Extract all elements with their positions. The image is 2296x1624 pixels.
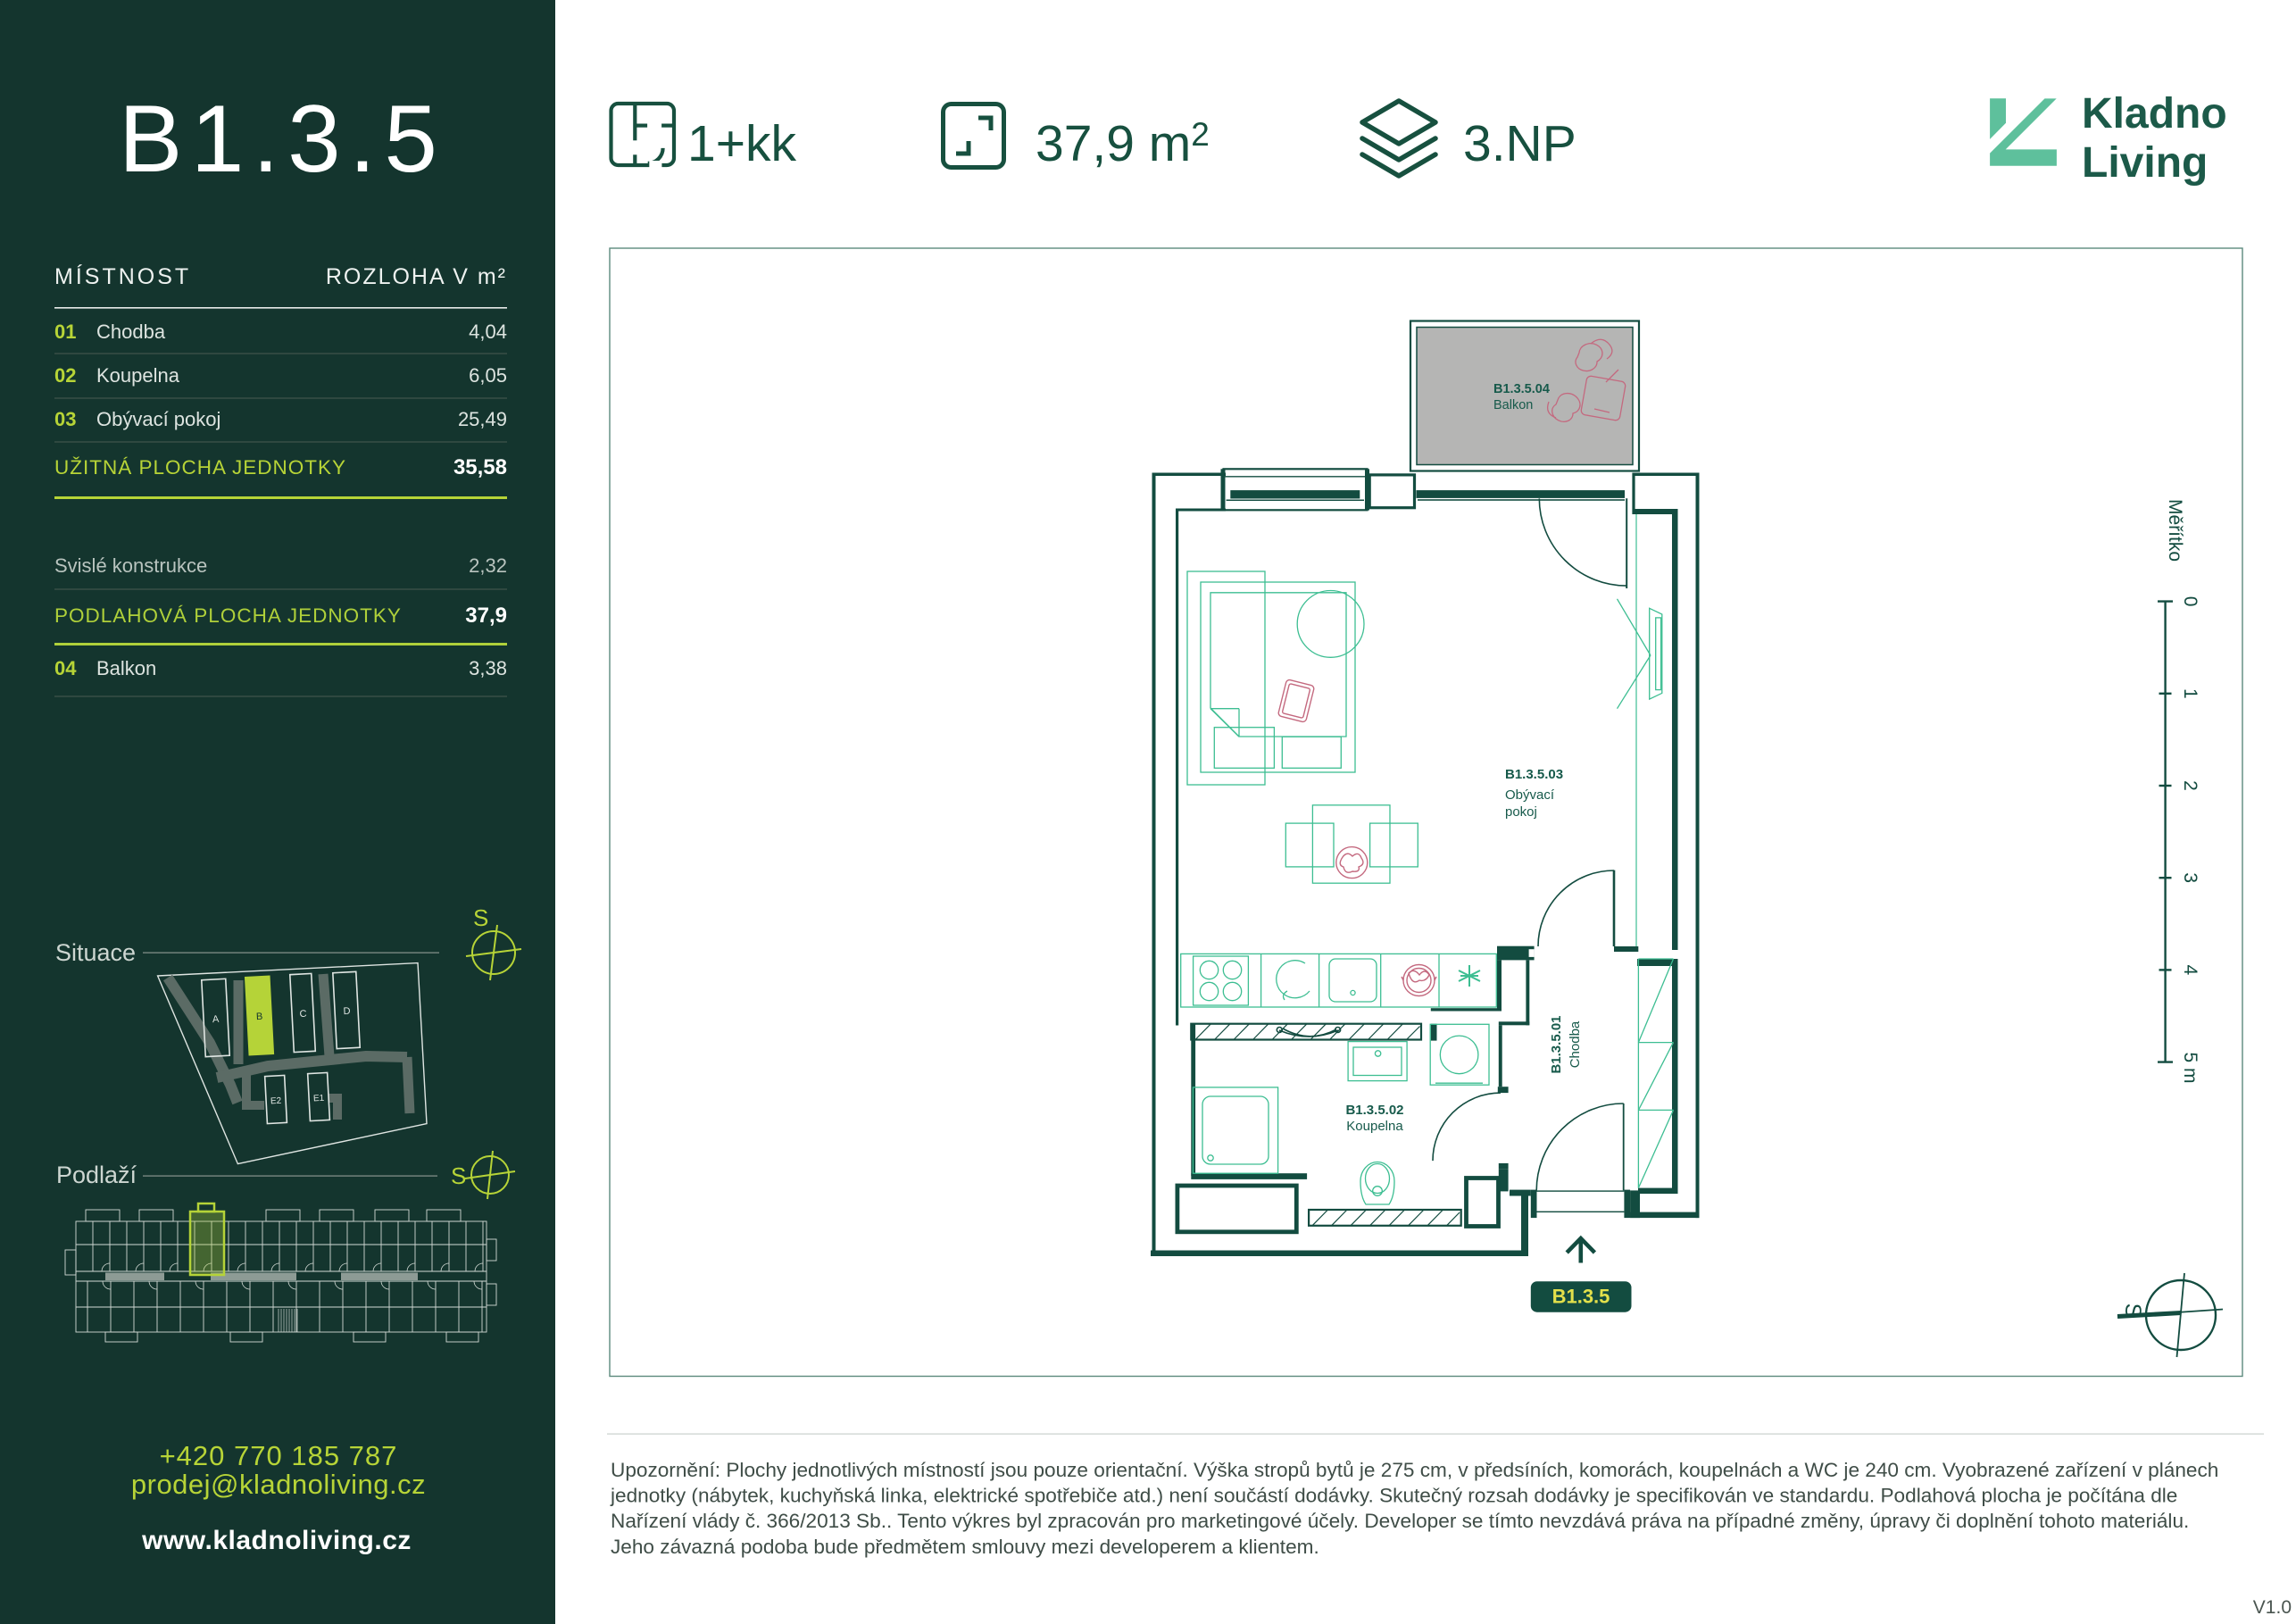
svg-text:2,32: 2,32 bbox=[469, 554, 507, 577]
svg-text:Měřítko: Měřítko bbox=[2165, 499, 2185, 562]
svg-text:2: 2 bbox=[2180, 780, 2200, 791]
svg-text:B1.3.5.02: B1.3.5.02 bbox=[1345, 1103, 1403, 1118]
svg-text:B: B bbox=[256, 1012, 263, 1022]
svg-text:B1.3.5.04: B1.3.5.04 bbox=[1493, 382, 1550, 396]
svg-text:S: S bbox=[2120, 1303, 2145, 1319]
svg-text:Koupelna: Koupelna bbox=[96, 364, 180, 387]
svg-text:pokoj: pokoj bbox=[1505, 804, 1537, 820]
svg-text:Balkon: Balkon bbox=[96, 657, 156, 679]
svg-text:3.NP: 3.NP bbox=[1463, 115, 1576, 172]
svg-text:37,9 m2: 37,9 m2 bbox=[1036, 115, 1210, 172]
svg-text:prodej@kladnoliving.cz: prodej@kladnoliving.cz bbox=[131, 1469, 426, 1500]
svg-text:02: 02 bbox=[54, 364, 76, 387]
svg-text:ROZLOHA V m²: ROZLOHA V m² bbox=[326, 264, 507, 289]
svg-text:Balkon: Balkon bbox=[1493, 398, 1533, 412]
svg-text:Living: Living bbox=[2082, 139, 2208, 187]
svg-text:5 m: 5 m bbox=[2180, 1052, 2200, 1083]
svg-text:01: 01 bbox=[54, 321, 76, 343]
svg-text:Svislé konstrukce: Svislé konstrukce bbox=[54, 554, 207, 577]
svg-text:S: S bbox=[451, 1162, 466, 1189]
svg-text:PODLAHOVÁ PLOCHA JEDNOTKY: PODLAHOVÁ PLOCHA JEDNOTKY bbox=[54, 604, 402, 627]
svg-text:B1.3.5.01: B1.3.5.01 bbox=[1549, 1015, 1564, 1073]
svg-text:E2: E2 bbox=[270, 1096, 282, 1107]
svg-text:B1.3.5: B1.3.5 bbox=[1552, 1286, 1610, 1308]
svg-text:Situace: Situace bbox=[55, 939, 136, 966]
svg-text:35,58: 35,58 bbox=[453, 455, 507, 479]
svg-text:V1.0: V1.0 bbox=[2253, 1597, 2292, 1618]
svg-text:25,49: 25,49 bbox=[458, 408, 507, 430]
svg-text:Obývací: Obývací bbox=[1505, 787, 1555, 803]
svg-text:3: 3 bbox=[2180, 872, 2200, 883]
svg-text:MÍSTNOST: MÍSTNOST bbox=[54, 263, 191, 289]
svg-text:04: 04 bbox=[54, 657, 77, 679]
svg-text:Jeho závazná podoba bude předm: Jeho závazná podoba bude předmětem smlou… bbox=[611, 1536, 1319, 1558]
svg-text:03: 03 bbox=[54, 408, 76, 430]
svg-text:A: A bbox=[212, 1014, 220, 1025]
svg-text:1+kk: 1+kk bbox=[687, 115, 796, 172]
svg-text:jednotky (nábytek, kuchyňská l: jednotky (nábytek, kuchyňská linka, elek… bbox=[610, 1485, 2177, 1507]
svg-text:Podlaží: Podlaží bbox=[56, 1162, 137, 1188]
svg-text:C: C bbox=[299, 1009, 307, 1020]
svg-text:S: S bbox=[473, 904, 488, 931]
svg-text:4: 4 bbox=[2180, 965, 2200, 976]
svg-text:B1.3.5: B1.3.5 bbox=[119, 85, 445, 192]
svg-text:4,04: 4,04 bbox=[469, 321, 507, 343]
svg-text:Obývací pokoj: Obývací pokoj bbox=[96, 408, 220, 430]
svg-text:+420 770 185 787: +420 770 185 787 bbox=[160, 1440, 398, 1471]
svg-text:3,38: 3,38 bbox=[469, 657, 507, 679]
svg-text:Kladno: Kladno bbox=[2082, 90, 2227, 137]
svg-text:0: 0 bbox=[2180, 596, 2200, 607]
svg-text:UŽITNÁ PLOCHA JEDNOTKY: UŽITNÁ PLOCHA JEDNOTKY bbox=[54, 456, 346, 479]
svg-text:1: 1 bbox=[2180, 688, 2200, 699]
svg-text:E1: E1 bbox=[313, 1094, 325, 1104]
svg-text:www.kladnoliving.cz: www.kladnoliving.cz bbox=[141, 1526, 412, 1555]
svg-text:Koupelna: Koupelna bbox=[1346, 1119, 1403, 1134]
svg-text:Nařízení vlády č. 366/2013 Sb.: Nařízení vlády č. 366/2013 Sb.. Tento vý… bbox=[611, 1510, 2189, 1532]
svg-text:Upozornění: Plochy jednotlivýc: Upozornění: Plochy jednotlivých místnost… bbox=[611, 1459, 2218, 1481]
svg-text:Chodba: Chodba bbox=[96, 321, 166, 343]
svg-text:B1.3.5.03: B1.3.5.03 bbox=[1505, 767, 1563, 782]
svg-text:Chodba: Chodba bbox=[1568, 1020, 1583, 1068]
svg-text:37,9: 37,9 bbox=[465, 604, 507, 628]
svg-text:6,05: 6,05 bbox=[469, 364, 507, 387]
svg-text:D: D bbox=[343, 1006, 351, 1017]
